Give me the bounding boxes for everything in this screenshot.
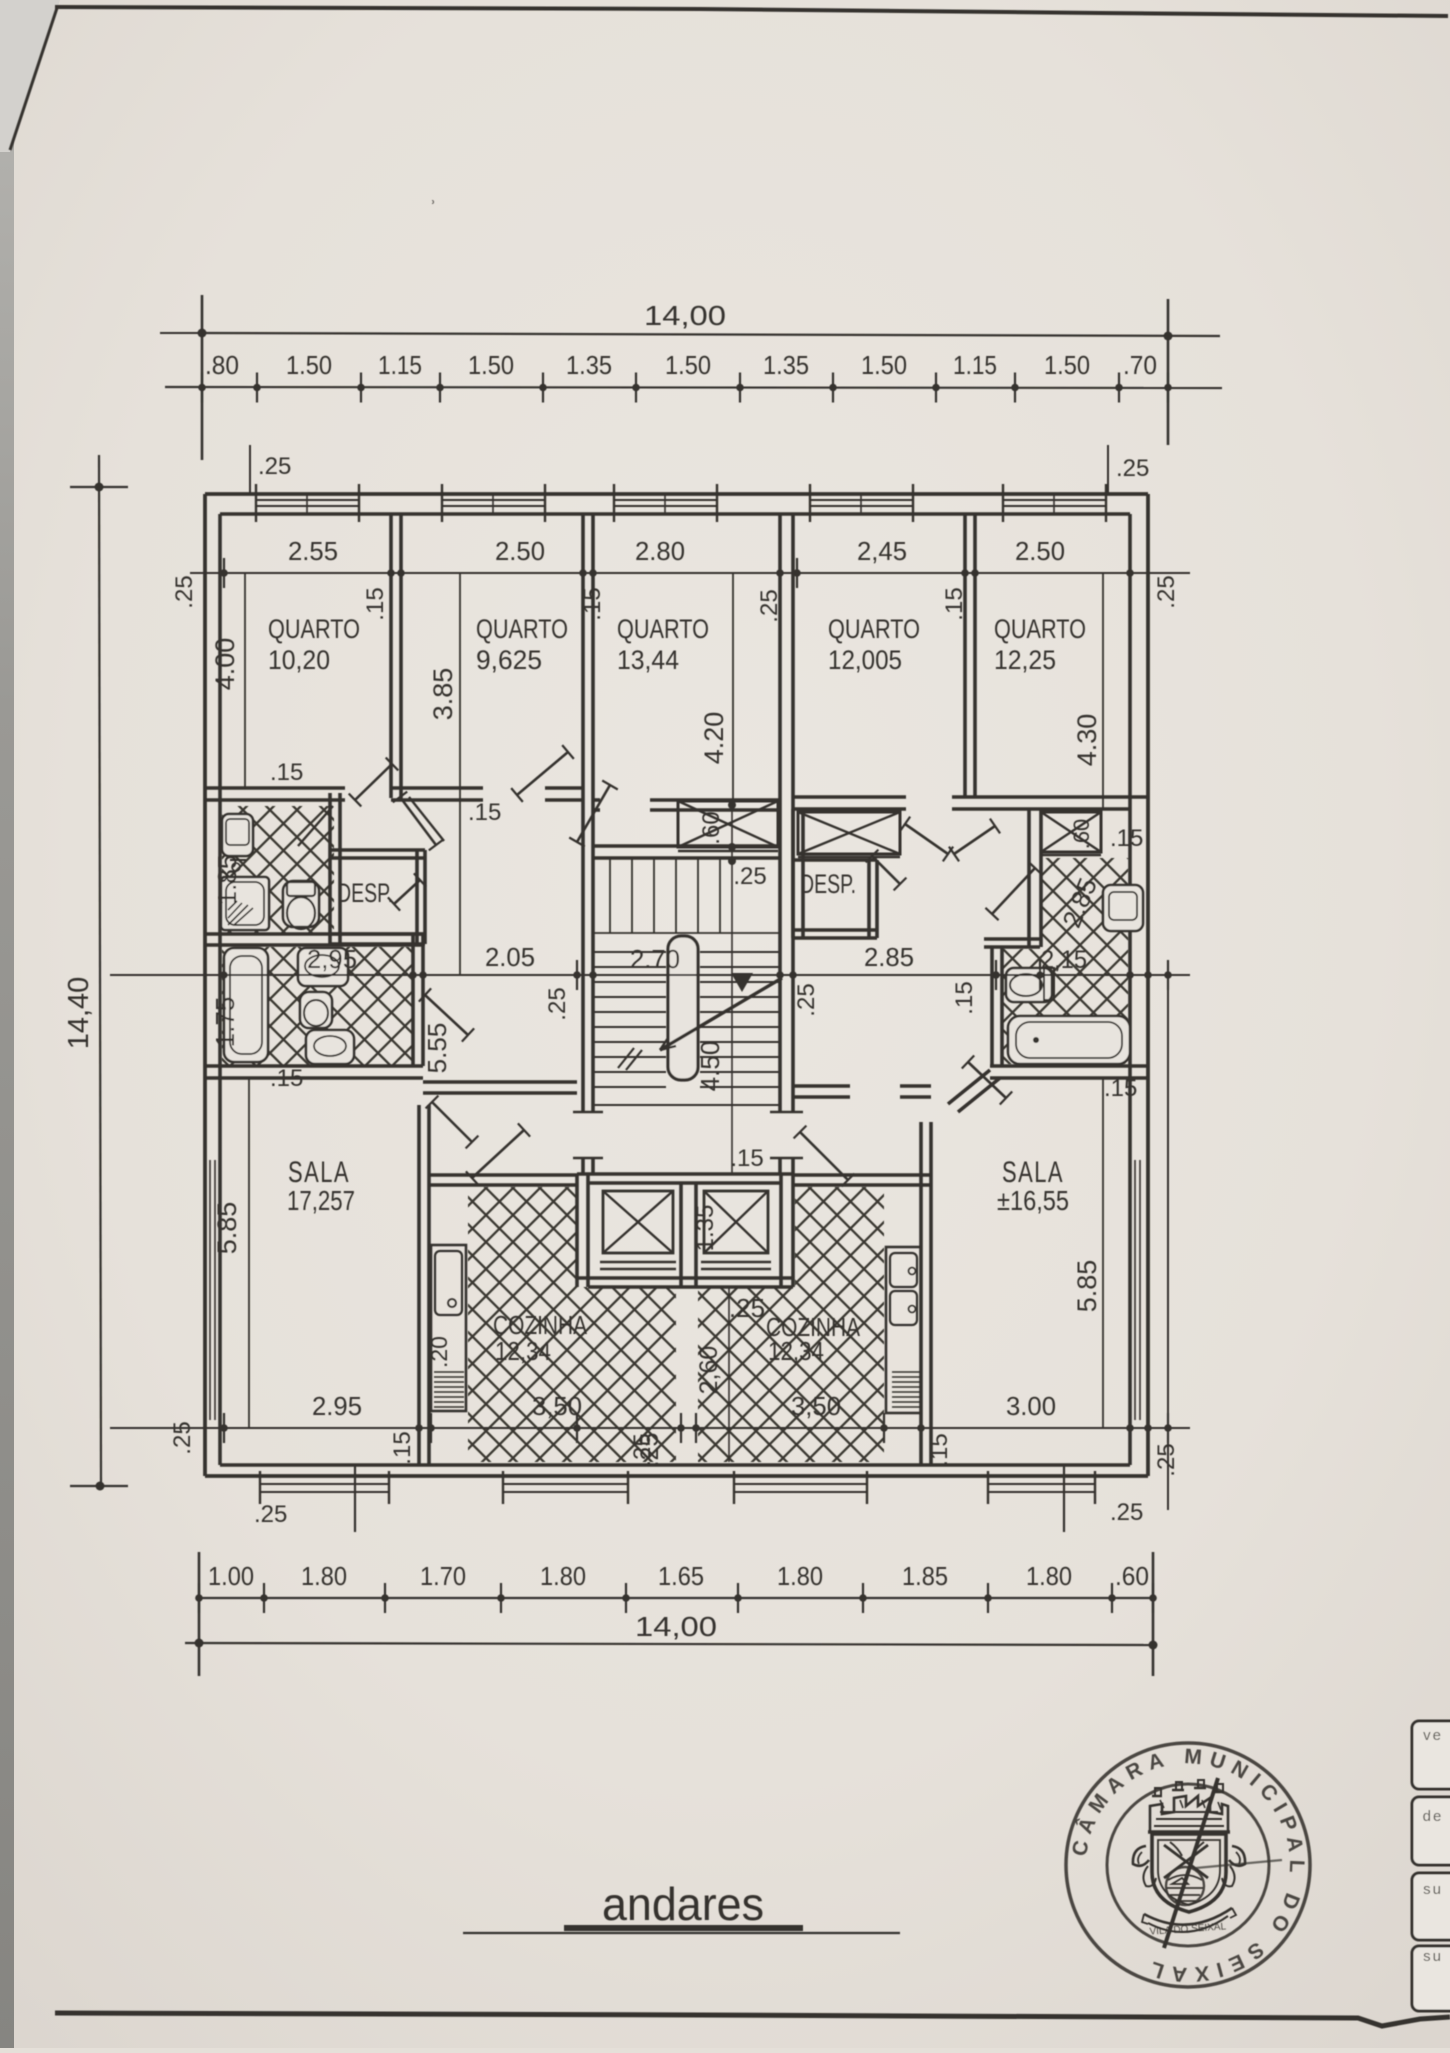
svg-text:13,44: 13,44 xyxy=(617,645,679,675)
svg-text:QUARTO: QUARTO xyxy=(994,614,1086,644)
svg-text:.25: .25 xyxy=(729,1293,765,1323)
svg-text:1.15: 1.15 xyxy=(953,350,997,380)
svg-text:14,00: 14,00 xyxy=(635,1611,717,1642)
svg-text:ve: ve xyxy=(1423,1727,1443,1744)
svg-text:12,005: 12,005 xyxy=(828,645,902,675)
svg-text:.80: .80 xyxy=(205,350,239,380)
svg-text:.15: .15 xyxy=(1110,825,1143,852)
svg-text:3.85: 3.85 xyxy=(428,668,458,721)
svg-text:10,20: 10,20 xyxy=(268,645,330,675)
svg-text:2,15: 2,15 xyxy=(1041,946,1087,974)
svg-text:.60: .60 xyxy=(1115,1561,1149,1591)
svg-text:1.85: 1.85 xyxy=(902,1561,948,1591)
svg-text:4.30: 4.30 xyxy=(1072,714,1102,767)
svg-text:.25: .25 xyxy=(169,1421,196,1454)
svg-text:.15: .15 xyxy=(941,587,968,620)
svg-text:17,257: 17,257 xyxy=(287,1185,355,1216)
svg-text:3,50: 3,50 xyxy=(791,1391,841,1421)
svg-text:su: su xyxy=(1423,1948,1443,1965)
svg-text:.15: .15 xyxy=(951,981,978,1014)
svg-text:1.80: 1.80 xyxy=(301,1561,347,1591)
svg-text:1.50: 1.50 xyxy=(1044,350,1090,380)
svg-text:2,45: 2,45 xyxy=(857,536,907,566)
svg-text:2.95: 2.95 xyxy=(312,1391,362,1421)
svg-text:1.80: 1.80 xyxy=(1026,1561,1072,1591)
svg-text:1.65: 1.65 xyxy=(658,1561,704,1591)
svg-text:12,25: 12,25 xyxy=(994,645,1056,675)
svg-text:1.00: 1.00 xyxy=(208,1561,254,1591)
svg-text:de: de xyxy=(1423,1808,1444,1825)
svg-text:.15: .15 xyxy=(362,587,389,620)
svg-text:2.70: 2.70 xyxy=(630,944,680,974)
svg-text:1.80: 1.80 xyxy=(540,1561,586,1591)
svg-text:.25: .25 xyxy=(258,453,291,480)
svg-text:.25: .25 xyxy=(756,589,783,622)
svg-text:.60: .60 xyxy=(698,811,725,844)
svg-text:.25: .25 xyxy=(1110,1499,1143,1526)
svg-text:2.80: 2.80 xyxy=(635,536,685,566)
svg-text:1.85: 1.85 xyxy=(212,855,242,906)
svg-text:.20: .20 xyxy=(426,1336,452,1368)
svg-text:2.50: 2.50 xyxy=(1015,536,1065,566)
svg-text:QUARTO: QUARTO xyxy=(476,614,568,644)
svg-text:3,50: 3,50 xyxy=(532,1391,582,1421)
svg-text:12,34: 12,34 xyxy=(768,1336,824,1366)
svg-text:.15: .15 xyxy=(926,1433,953,1466)
svg-text:2.50: 2.50 xyxy=(495,536,545,566)
svg-text:.15: .15 xyxy=(730,1145,763,1172)
svg-text:1.70: 1.70 xyxy=(420,1561,466,1591)
svg-text:1.50: 1.50 xyxy=(861,350,907,380)
svg-text:1.35: 1.35 xyxy=(763,350,809,380)
svg-text:.15: .15 xyxy=(1104,1075,1137,1102)
svg-text:.60: .60 xyxy=(1069,819,1094,850)
svg-text:.15: .15 xyxy=(468,799,501,826)
svg-text:1.35: 1.35 xyxy=(566,350,612,380)
svg-text:.25: .25 xyxy=(544,987,571,1020)
svg-text:4.00: 4.00 xyxy=(210,638,240,691)
svg-text:9,625: 9,625 xyxy=(476,645,542,675)
svg-text:1.50: 1.50 xyxy=(286,350,332,380)
svg-text:5.85: 5.85 xyxy=(212,1202,242,1255)
svg-text:14,40: 14,40 xyxy=(63,977,95,1050)
svg-text:˒: ˒ xyxy=(429,185,436,210)
svg-text:QUARTO: QUARTO xyxy=(617,614,709,644)
svg-text:5.55: 5.55 xyxy=(422,1023,452,1074)
svg-text:1.50: 1.50 xyxy=(468,350,514,380)
svg-text:.25: .25 xyxy=(254,1501,287,1528)
svg-text:3.00: 3.00 xyxy=(1006,1391,1056,1421)
svg-text:1.50: 1.50 xyxy=(665,350,711,380)
svg-text:12,34: 12,34 xyxy=(495,1336,551,1366)
svg-text:QUARTO: QUARTO xyxy=(828,614,920,644)
svg-text:.25: .25 xyxy=(793,983,820,1016)
svg-text:.25: .25 xyxy=(1153,575,1180,608)
svg-text:.15: .15 xyxy=(389,1431,416,1464)
svg-text:DESP.: DESP. xyxy=(337,878,393,908)
svg-text:2.85: 2.85 xyxy=(864,942,914,972)
svg-text:2,95: 2,95 xyxy=(307,944,357,974)
svg-text:.15: .15 xyxy=(579,587,606,620)
svg-text:2.05: 2.05 xyxy=(485,942,535,972)
svg-text:QUARTO: QUARTO xyxy=(268,614,360,644)
svg-text:5.85: 5.85 xyxy=(1072,1260,1102,1313)
svg-text:1.75: 1.75 xyxy=(210,997,240,1048)
svg-text:4.50: 4.50 xyxy=(695,1041,725,1092)
svg-text:2,60: 2,60 xyxy=(695,1346,723,1395)
svg-text:DESP.: DESP. xyxy=(800,869,856,899)
svg-text:1.35: 1.35 xyxy=(692,1205,719,1252)
svg-text:andares: andares xyxy=(602,1878,764,1930)
svg-text:4.20: 4.20 xyxy=(699,712,729,765)
svg-text:.25: .25 xyxy=(171,575,198,608)
svg-text:.15: .15 xyxy=(270,759,303,786)
svg-text:±16,55: ±16,55 xyxy=(997,1185,1069,1216)
svg-text:14,00: 14,00 xyxy=(644,300,726,331)
svg-text:.25: .25 xyxy=(1116,455,1149,482)
svg-text:2.55: 2.55 xyxy=(288,536,338,566)
svg-text:.25: .25 xyxy=(629,1433,656,1466)
svg-text:1.15: 1.15 xyxy=(378,350,422,380)
svg-text:.70: .70 xyxy=(1123,350,1157,380)
svg-text:.25: .25 xyxy=(733,863,766,890)
svg-text:1.80: 1.80 xyxy=(777,1561,823,1591)
svg-text:su: su xyxy=(1423,1881,1443,1898)
svg-text:.15: .15 xyxy=(270,1065,303,1092)
svg-text:.25: .25 xyxy=(1153,1443,1180,1476)
